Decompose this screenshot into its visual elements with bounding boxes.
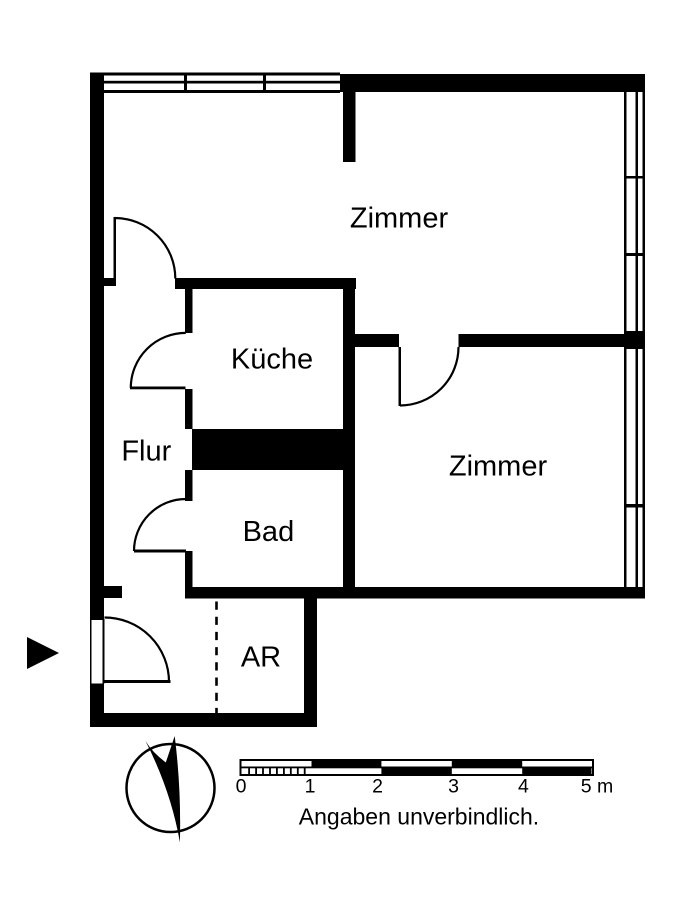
svg-text:4: 4 bbox=[518, 776, 529, 798]
svg-text:Zimmer: Zimmer bbox=[449, 451, 548, 483]
svg-text:AR: AR bbox=[241, 642, 281, 674]
svg-text:Zimmer: Zimmer bbox=[350, 203, 449, 235]
svg-text:Küche: Küche bbox=[231, 343, 313, 375]
svg-text:Bad: Bad bbox=[243, 516, 295, 548]
svg-text:2: 2 bbox=[372, 776, 383, 798]
svg-text:0: 0 bbox=[236, 776, 247, 798]
svg-text:1: 1 bbox=[305, 776, 316, 798]
svg-text:Flur: Flur bbox=[121, 435, 171, 467]
svg-text:3: 3 bbox=[448, 776, 459, 798]
svg-text:Angaben unverbindlich.: Angaben unverbindlich. bbox=[299, 804, 539, 830]
svg-text:5 m: 5 m bbox=[581, 776, 614, 798]
